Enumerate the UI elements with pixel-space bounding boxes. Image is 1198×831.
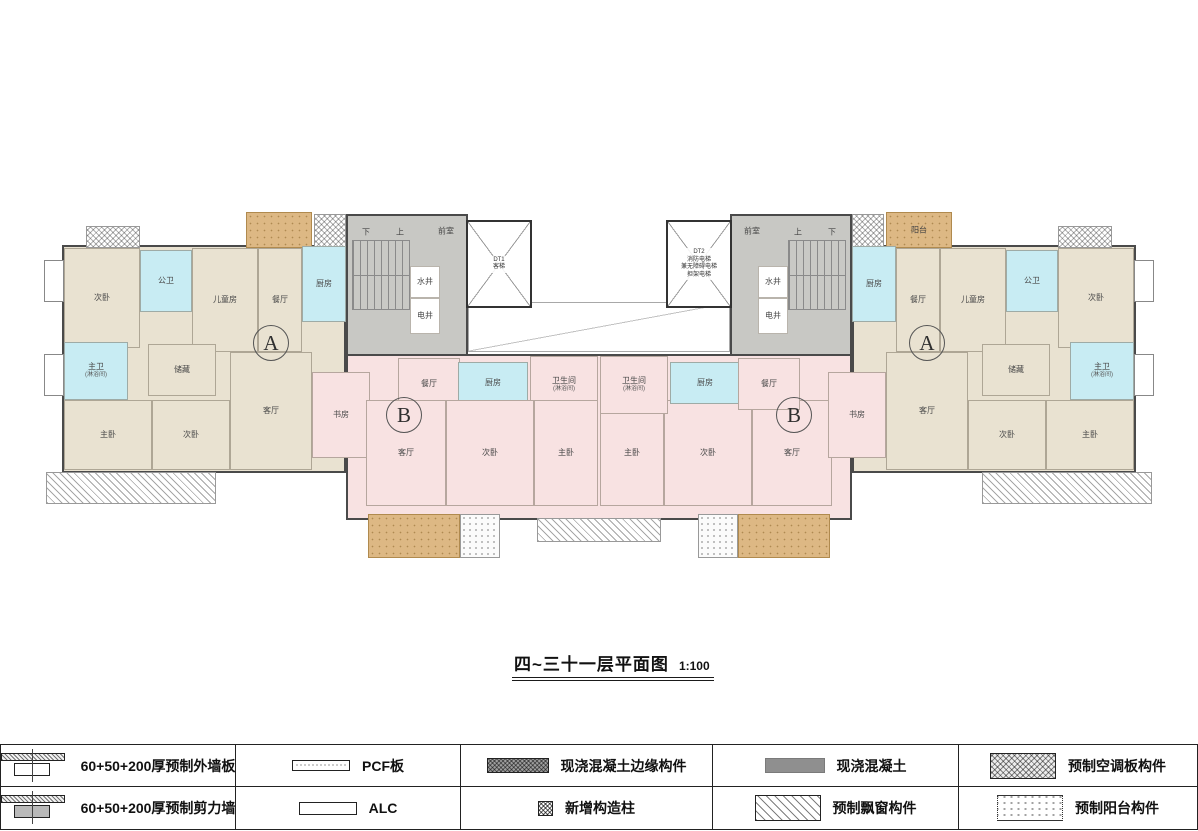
room: 厨房 <box>302 246 346 322</box>
room-label: 厨房 <box>485 379 501 388</box>
legend-cell: PCF板 <box>235 745 460 787</box>
legend-label: 现浇混凝土边缘构件 <box>561 756 687 776</box>
plan-label: 阳台 <box>911 225 927 236</box>
bay-patch <box>44 354 64 396</box>
room: 主卧 <box>600 400 664 506</box>
room-label: 卫生间 <box>622 377 646 386</box>
room: 卫生间(淋浴间) <box>600 356 668 414</box>
room-label: 卫生间 <box>552 377 576 386</box>
room-sublabel: (淋浴间) <box>623 386 645 393</box>
legend-label: 预制空调板构件 <box>1068 756 1166 776</box>
room: 客厅 <box>230 352 312 470</box>
room-label: 主卧 <box>624 449 640 458</box>
unit-circle-a: A <box>253 325 289 361</box>
room: 厨房 <box>458 362 528 404</box>
legend-table: 60+50+200厚预制外墙板PCF板现浇混凝土边缘构件现浇混凝土预制空调板构件… <box>0 744 1198 830</box>
room-label: 电井 <box>417 312 433 321</box>
crosshatch-patch <box>86 226 140 248</box>
room: 书房 <box>828 372 886 458</box>
room: 主卧 <box>64 400 152 470</box>
drawing-title: 四~三十一层平面图 <box>514 650 669 675</box>
room-label: 客厅 <box>398 449 414 458</box>
room-label: 厨房 <box>866 280 882 289</box>
legend-cell: 现浇混凝土 <box>712 745 958 787</box>
room-label: 厨房 <box>697 379 713 388</box>
balcony-tan-patch <box>738 514 830 558</box>
room-label: 主卧 <box>100 431 116 440</box>
room: 厨房 <box>852 246 896 322</box>
room-label: 储藏 <box>1008 366 1024 375</box>
room: 水井 <box>410 266 440 298</box>
legend-cell: 预制阳台构件 <box>958 787 1197 829</box>
plan-label: 下 <box>362 227 370 238</box>
crosshatch-bar-icon <box>990 753 1056 779</box>
elevator-label: DT1客梯 <box>491 256 507 273</box>
room-label: 公卫 <box>158 277 174 286</box>
dots-white-patch <box>698 514 738 558</box>
plan-label: 前室 <box>744 226 760 237</box>
room: 主卧 <box>534 400 598 506</box>
room-sublabel: (淋浴间) <box>85 372 107 379</box>
legend-label: ALC <box>369 800 398 816</box>
room: 公卫 <box>1006 250 1058 312</box>
plan-label: 前室 <box>438 226 454 237</box>
room: 儿童房 <box>940 248 1006 352</box>
crosshatch-patch <box>852 214 884 248</box>
stairs-patch <box>788 240 846 310</box>
room: 储藏 <box>148 344 216 396</box>
room-label: 次卧 <box>94 294 110 303</box>
bay-patch <box>44 260 64 302</box>
room-label: 儿童房 <box>961 296 985 305</box>
room-label: 厨房 <box>316 280 332 289</box>
dotted-bar-icon <box>997 795 1063 821</box>
bay-patch <box>1134 260 1154 302</box>
room-label: 书房 <box>333 411 349 420</box>
elevator-label: DT2消防电梯兼无障碍电梯担架电梯 <box>679 248 719 280</box>
legend-cell: 新增构造柱 <box>460 787 712 829</box>
room: 次卧 <box>446 400 534 506</box>
unit-circle-b: B <box>386 397 422 433</box>
room-label: 主卫 <box>1094 363 1110 372</box>
elevator-dt2: DT2消防电梯兼无障碍电梯担架电梯 <box>666 220 732 308</box>
legend-cell: 现浇混凝土边缘构件 <box>460 745 712 787</box>
diag-patch <box>46 472 216 504</box>
room-label: 客厅 <box>784 449 800 458</box>
room-label: 水井 <box>417 278 433 287</box>
balcony-tan-patch <box>368 514 460 558</box>
room: 儿童房 <box>192 248 258 352</box>
floor-plan: 次卧公卫儿童房餐厅厨房主卫(淋浴间)储藏主卧次卧客厅书房餐厅厨房卫生间(淋浴间)… <box>0 0 1198 831</box>
lightwell-patch <box>468 302 730 352</box>
alc-bar-icon <box>299 802 357 815</box>
room-label: 次卧 <box>700 449 716 458</box>
plan-label: 下 <box>828 227 836 238</box>
legend-cell: 60+50+200厚预制剪力墙 <box>1 787 235 829</box>
room: 次卧 <box>1058 248 1134 348</box>
room-label: 餐厅 <box>272 296 288 305</box>
room: 厨房 <box>670 362 740 404</box>
room-label: 客厅 <box>263 407 279 416</box>
room-label: 公卫 <box>1024 277 1040 286</box>
room-sublabel: (淋浴间) <box>553 386 575 393</box>
room: 电井 <box>758 298 788 334</box>
room-label: 书房 <box>849 411 865 420</box>
exterior-wall-icon <box>1 751 69 781</box>
room: 次卧 <box>664 400 752 506</box>
stairs-patch <box>352 240 410 310</box>
room: 水井 <box>758 266 788 298</box>
room-label: 餐厅 <box>910 296 926 305</box>
legend-label: 60+50+200厚预制剪力墙 <box>81 798 236 818</box>
unit-circle-b: B <box>776 397 812 433</box>
legend-cell: 预制空调板构件 <box>958 745 1197 787</box>
room-label: 主卧 <box>558 449 574 458</box>
drawing-scale: 1:100 <box>679 659 710 673</box>
room-label: 餐厅 <box>421 380 437 389</box>
elevator-dt1: DT1客梯 <box>466 220 532 308</box>
crosshatch-patch <box>314 214 346 248</box>
plan-label: 上 <box>396 227 404 238</box>
room-label: 儿童房 <box>213 296 237 305</box>
crosshatch-patch <box>1058 226 1112 248</box>
legend-cell: ALC <box>235 787 460 829</box>
room: 次卧 <box>64 248 140 348</box>
diag-patch <box>982 472 1152 504</box>
column-square-icon <box>538 801 553 816</box>
dots-white-patch <box>460 514 500 558</box>
room-label: 主卧 <box>1082 431 1098 440</box>
legend-label: 现浇混凝土 <box>837 756 907 776</box>
room: 次卧 <box>152 400 230 470</box>
legend-label: 预制阳台构件 <box>1075 798 1159 818</box>
pcf-bar-icon <box>292 760 350 771</box>
room-sublabel: (淋浴间) <box>1091 372 1113 379</box>
edge-hatch-icon <box>487 758 549 773</box>
drawing-canvas: 次卧公卫儿童房餐厅厨房主卫(淋浴间)储藏主卧次卧客厅书房餐厅厨房卫生间(淋浴间)… <box>0 0 1198 831</box>
room: 电井 <box>410 298 440 334</box>
concrete-bar-icon <box>765 758 825 773</box>
plan-label: 上 <box>794 227 802 238</box>
room-label: 次卧 <box>183 431 199 440</box>
room: 书房 <box>312 372 370 458</box>
room: 储藏 <box>982 344 1050 396</box>
room-label: 电井 <box>765 312 781 321</box>
room-label: 客厅 <box>919 407 935 416</box>
room: 主卧 <box>1046 400 1134 470</box>
room-label: 储藏 <box>174 366 190 375</box>
diag-patch <box>537 518 661 542</box>
unit-circle-a: A <box>909 325 945 361</box>
legend-cell: 60+50+200厚预制外墙板 <box>1 745 235 787</box>
diag-hatch-bar-icon <box>755 795 821 821</box>
legend-label: 新增构造柱 <box>565 798 635 818</box>
legend-label: 预制飘窗构件 <box>833 798 917 818</box>
room-label: 次卧 <box>1088 294 1104 303</box>
room-label: 主卫 <box>88 363 104 372</box>
room: 公卫 <box>140 250 192 312</box>
balcony-tan-patch <box>246 212 312 248</box>
legend-label: 60+50+200厚预制外墙板 <box>81 756 236 776</box>
room: 次卧 <box>968 400 1046 470</box>
legend-cell: 预制飘窗构件 <box>712 787 958 829</box>
room: 主卫(淋浴间) <box>64 342 128 400</box>
room: 客厅 <box>886 352 968 470</box>
room-label: 餐厅 <box>761 380 777 389</box>
legend-label: PCF板 <box>362 756 404 776</box>
shear-wall-icon <box>1 793 69 823</box>
room: 主卫(淋浴间) <box>1070 342 1134 400</box>
room-label: 水井 <box>765 278 781 287</box>
bay-patch <box>1134 354 1154 396</box>
drawing-title-block: 四~三十一层平面图 1:100 <box>512 650 714 681</box>
room-label: 次卧 <box>482 449 498 458</box>
room-label: 次卧 <box>999 431 1015 440</box>
